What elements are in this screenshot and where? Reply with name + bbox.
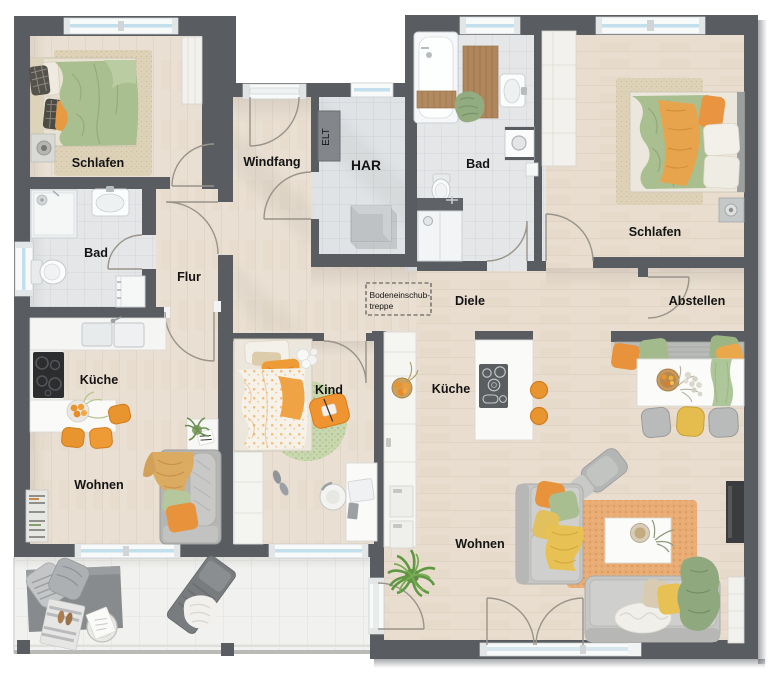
svg-text:Flur: Flur: [177, 270, 201, 284]
svg-text:Windfang: Windfang: [243, 155, 300, 169]
svg-text:Bodeneinschub-: Bodeneinschub-: [370, 290, 431, 300]
svg-text:Wohnen: Wohnen: [74, 478, 123, 492]
svg-text:Bad: Bad: [466, 157, 490, 171]
svg-text:Küche: Küche: [80, 373, 119, 387]
svg-text:Schlafen: Schlafen: [629, 225, 682, 239]
svg-text:ELT: ELT: [321, 128, 332, 146]
svg-text:HAR: HAR: [351, 158, 381, 173]
svg-text:Bad: Bad: [84, 246, 108, 260]
svg-text:treppe: treppe: [370, 301, 394, 311]
svg-text:Kind: Kind: [315, 383, 343, 397]
svg-text:Abstellen: Abstellen: [669, 294, 726, 308]
svg-text:Küche: Küche: [432, 382, 471, 396]
svg-text:Diele: Diele: [455, 294, 485, 308]
svg-text:Schlafen: Schlafen: [72, 156, 125, 170]
svg-text:Wohnen: Wohnen: [455, 537, 504, 551]
